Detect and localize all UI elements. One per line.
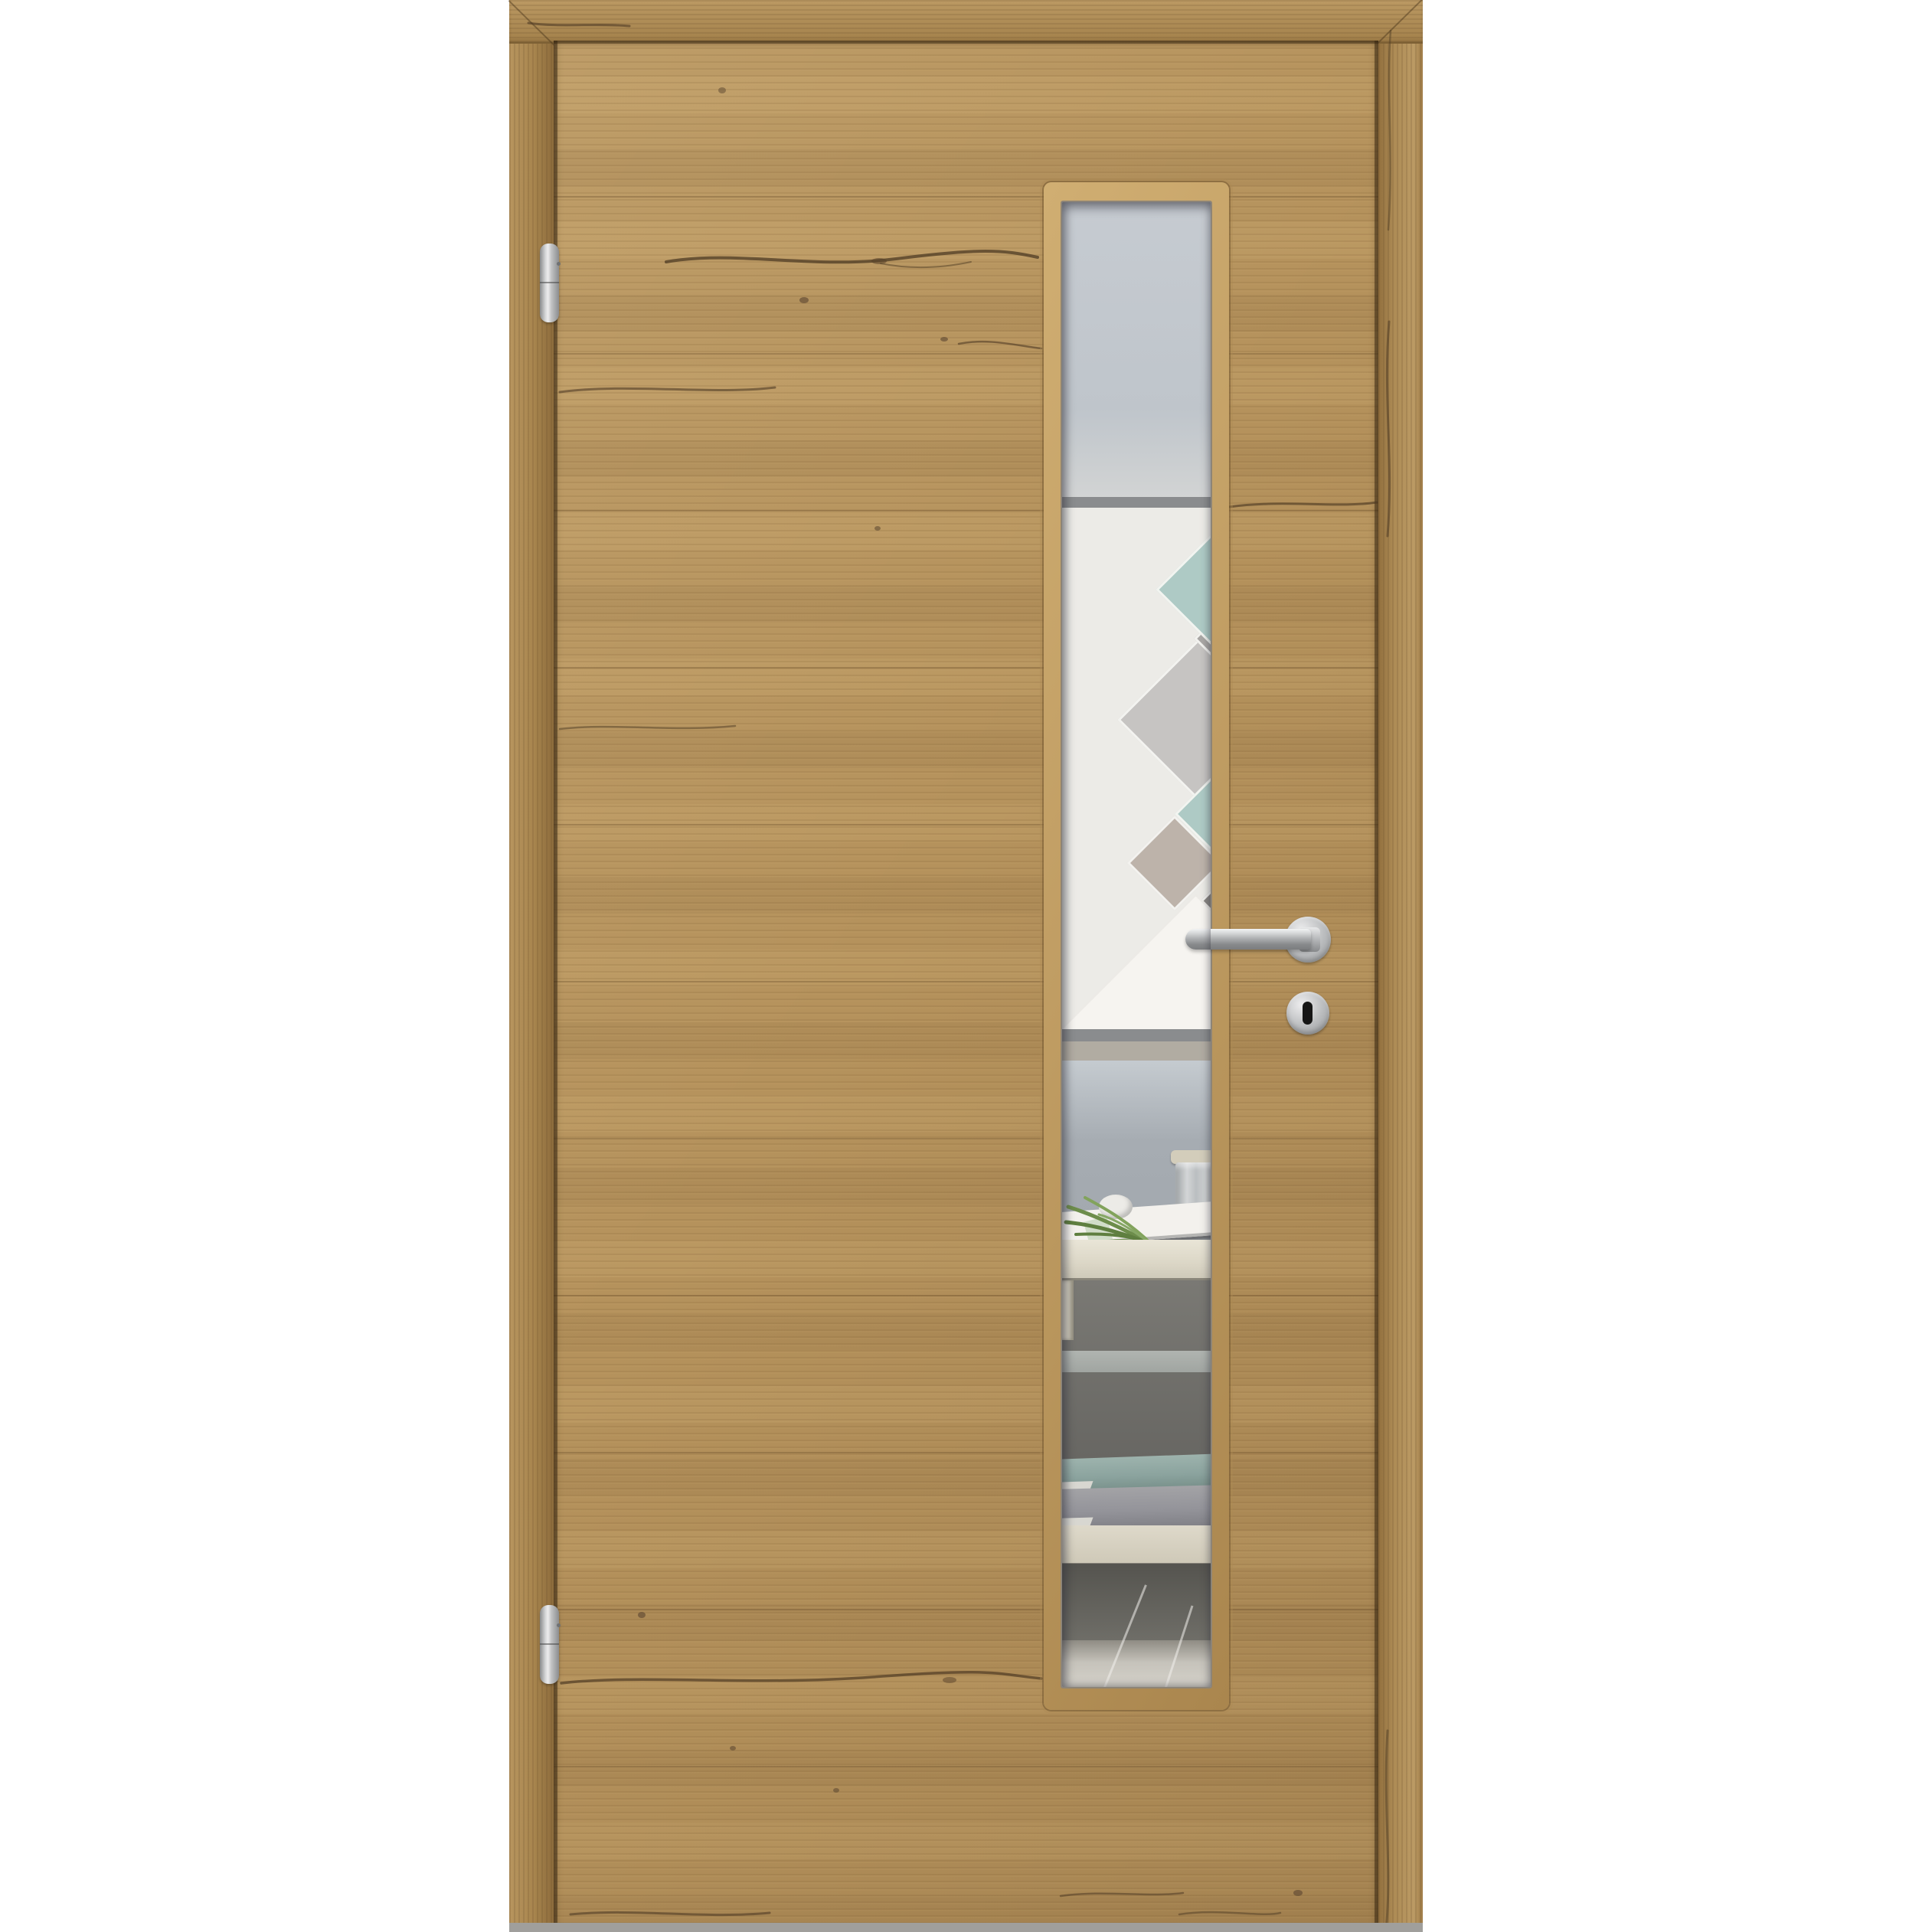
wood-crack [1388, 31, 1391, 230]
hinge-bottom [540, 1605, 559, 1684]
wood-crack [1179, 1912, 1280, 1914]
scene-table-leg [1062, 1280, 1074, 1340]
scene-book-gray [1061, 1485, 1212, 1531]
wood-crack [561, 1672, 1041, 1683]
wood-knot [718, 87, 726, 93]
scene-sideboard-top [1062, 1240, 1212, 1280]
floor-shadow-strip [509, 1923, 1423, 1932]
door-product-photo [0, 0, 1932, 1932]
scene-mosaic-wall [1062, 508, 1212, 1030]
scene-gray-band [1062, 1029, 1212, 1041]
wood-knot [799, 297, 809, 303]
scene-upper-wall [1062, 202, 1212, 498]
scene-panel-edge [1062, 497, 1212, 508]
wood-crack [560, 387, 775, 392]
wood-crack [1229, 502, 1377, 507]
wood-crack [1386, 1731, 1388, 1930]
wood-knot [833, 1788, 839, 1793]
wood-crack [1061, 1893, 1183, 1896]
scene-floor-tiles [1062, 1640, 1212, 1688]
wood-crack [560, 726, 735, 729]
scene-greige-band [1062, 1041, 1212, 1061]
hinge-top [540, 244, 559, 322]
key-escutcheon [1286, 992, 1329, 1035]
wood-crack [528, 23, 629, 26]
wood-crack [1387, 322, 1389, 536]
wood-knot [871, 258, 887, 264]
wood-crack [666, 251, 1038, 262]
wood-cracks-overlay [0, 0, 1932, 1932]
scene-back-light-strip [1062, 1351, 1212, 1372]
wood-knot [1293, 1890, 1303, 1896]
door-handle-lever [1185, 929, 1311, 950]
wood-crack [959, 342, 1041, 348]
wood-crack [881, 262, 971, 267]
wood-crack [570, 1912, 770, 1914]
scene-shelf [1062, 1525, 1212, 1565]
mosaic-diamond [1062, 893, 1212, 1030]
wood-knot [638, 1612, 646, 1618]
wood-knot [943, 1677, 956, 1683]
wood-knot [940, 337, 948, 342]
wood-knot [730, 1746, 736, 1751]
wood-knot [874, 526, 881, 531]
keyhole [1303, 1002, 1313, 1025]
